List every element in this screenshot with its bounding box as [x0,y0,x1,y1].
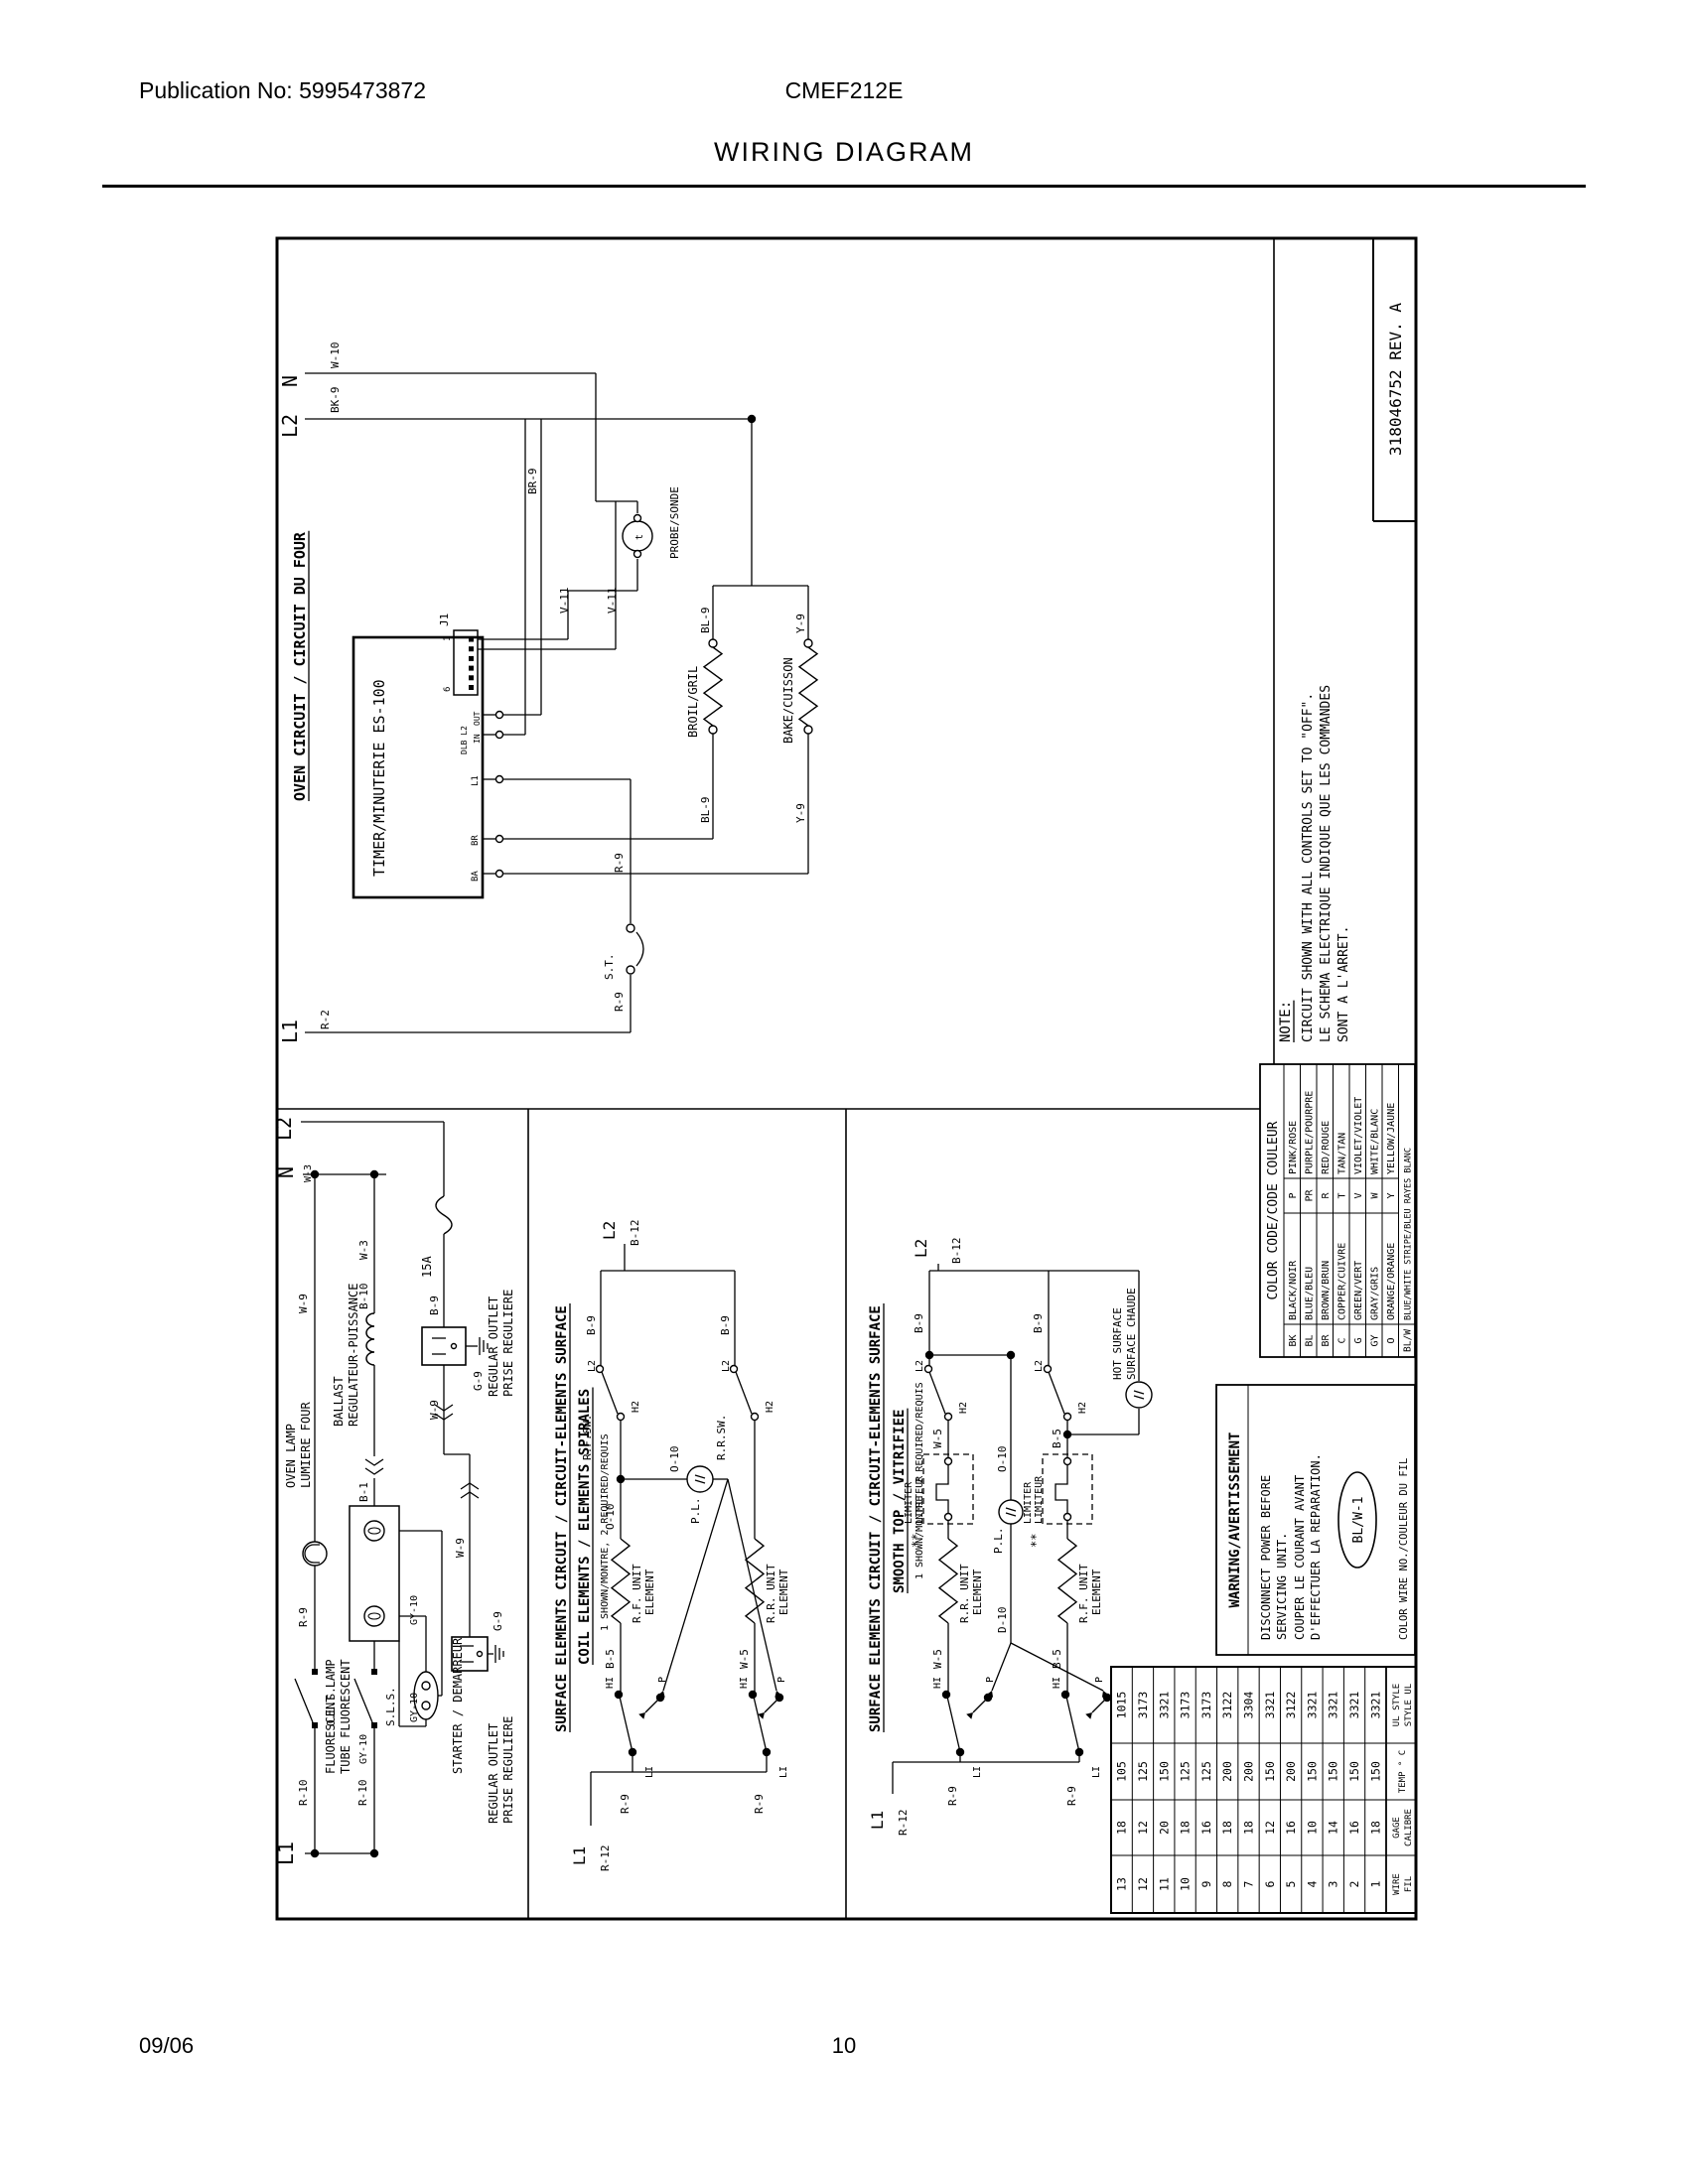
label-3: R-9 [613,992,626,1012]
model-number: CMEF212E [0,77,1688,104]
wire [354,1679,372,1722]
wire-table-cell: 14 [1327,1821,1340,1835]
wire-table-header: WIRE [1392,1873,1402,1895]
revision-box: 318046752 REV. A [1386,303,1405,456]
terminal [1064,1414,1071,1421]
wire-table-cell: 3321 [1263,1692,1277,1719]
wire-table-header: UL STYLE [1392,1684,1402,1726]
label-14: DLB L2 [460,726,469,754]
wire-table-cell: 18 [1368,1821,1382,1835]
wire-table-cell: 3173 [1199,1692,1213,1719]
pilot-light [999,1500,1023,1524]
label-94: H2 [631,1401,641,1413]
warning-footer: COLOR WIRE NO./COULEUR DU FIL [1398,1458,1410,1640]
label-86: ELEMENT [643,1569,656,1615]
label-103: L1 [868,1811,887,1830]
label-20: BR-9 [526,469,539,495]
warning-line: SERVICING UNIT. [1275,1533,1289,1640]
contact-terminal [469,646,474,651]
label-95: L2 [587,1360,598,1372]
wire-no-example: BL/W-1 [1351,1497,1366,1544]
label-30: Y-9 [794,803,807,823]
label-7: BK-9 [329,387,342,414]
wire [1049,1372,1064,1414]
manual-page: Publication No: 5995473872 CMEF212E WIRI… [0,0,1688,2184]
wire-table-cell: 125 [1199,1761,1213,1782]
label-136: O-10 [996,1446,1009,1473]
label-119: R.F. UNIT [1077,1564,1090,1623]
label-113: HI [1052,1677,1062,1689]
label-123: LIMITEUR [914,1475,925,1524]
terminal [422,1702,430,1709]
label-12: 6 [443,687,453,692]
terminal [478,1652,483,1657]
label-55: GY-10 [409,1693,420,1722]
wire-table-cell: 200 [1284,1761,1298,1782]
wire-table-cell: 16 [1347,1821,1361,1835]
terminal [804,639,812,647]
terminal [422,1682,430,1690]
diagram-labels: OVEN CIRCUIT / CIRCUIT DU FOURL1R-2R-9R-… [275,342,1351,1872]
label-135: D-10 [996,1607,1009,1634]
filament [364,1606,384,1626]
ballast-coil [366,1313,374,1365]
label-9: W-10 [329,342,342,369]
label-70: 1 SHOWN/MONTRE, 2 REQUIRED/REQUIS [600,1433,611,1631]
wire-table-cell: 3173 [1136,1692,1150,1719]
color-name: GRAY/GRIS [1369,1267,1380,1320]
hot-surface-indicator [1126,1382,1152,1408]
wire-table-cell: 105 [1115,1761,1129,1782]
label-79: P [657,1677,668,1683]
color-abbr: GY [1369,1334,1380,1346]
label-96: H2 [765,1401,775,1413]
wire-table-cell: 18 [1242,1821,1256,1835]
symbol [936,1464,948,1513]
wire-table-cell: 6 [1263,1880,1277,1887]
label-107: R-9 [946,1786,959,1806]
revision-number: 318046752 REV. A [1386,303,1405,456]
label-33: LE SCHEMA ELECTRIQUE INDIQUE QUE LES COM… [1319,685,1334,1042]
label-53: B-10 [357,1284,370,1310]
wire-table-cell: 18 [1220,1821,1234,1835]
warning-title: WARNING/AVERTISSEMENT [1227,1432,1243,1607]
label-139: SURFACE CHAUDE [1125,1288,1138,1380]
label-83: B-5 [604,1649,617,1669]
wire-table-cell: 18 [1115,1821,1129,1835]
wire-table-cell: 2 [1347,1881,1361,1888]
rf-coil-element [612,1539,630,1623]
label-29: Y-9 [794,614,807,633]
color-abbr: T [1336,1192,1347,1198]
wire-table-cell: 8 [1220,1880,1234,1887]
j1-connector [454,630,478,695]
label-104: R-12 [897,1810,910,1837]
label-71: L1 [570,1846,589,1865]
wire [295,1679,313,1722]
wire-table-header: CALIBRE [1404,1809,1414,1846]
label-78: HI [605,1677,616,1689]
label-133: B-9 [913,1313,925,1333]
label-138: HOT SURFACE [1111,1307,1124,1380]
label-80: LI [778,1766,789,1778]
terminal [1045,1366,1052,1373]
contact-terminal [469,675,474,680]
label-21: V-11 [558,588,571,614]
terminal [627,966,634,974]
label-10: TIMER/MINUTERIE ES-100 [370,679,388,877]
label-57: STARTER / DEMARREUR [451,1637,465,1774]
fuse-15a [436,1196,452,1234]
label-117: R.R. UNIT [958,1564,971,1623]
label-134: B-9 [1032,1313,1045,1333]
wire [929,1372,945,1414]
junction-dot [750,1692,757,1699]
wire-table-cell: 3321 [1368,1692,1382,1719]
terminal [925,1366,932,1373]
pilot-light [687,1466,713,1492]
color-name: RED/ROUGE [1321,1121,1332,1174]
wire-table-cell: 200 [1220,1761,1234,1782]
contact-terminal [469,637,474,642]
terminal [496,871,503,878]
label-81: HI [739,1677,750,1689]
wire-table-cell: 3304 [1242,1692,1256,1719]
terminal [496,732,503,739]
color-abbr: W [1369,1192,1380,1199]
label-2: R-2 [319,1010,332,1029]
color-abbr: C [1336,1337,1347,1343]
color-name: PURPLE/POURPRE [1304,1091,1315,1174]
label-46: S.L.S. [384,1687,397,1726]
label-64: W-9 [454,1538,467,1558]
wire-table-cell: 7 [1242,1880,1256,1887]
terminal [634,515,641,522]
wire-table-cell: 12 [1136,1821,1150,1835]
label-131: H2 [1077,1402,1088,1414]
label-121: ** [910,1534,923,1548]
label-39: OVEN LAMP [284,1424,298,1488]
label-61: PRISE REGULIERE [501,1290,515,1397]
label-11: J1 [438,614,451,626]
label-126: LIMITEUR [1034,1475,1045,1524]
warning-line: DISCONNECT POWER BEFORE [1259,1475,1273,1640]
label-6: L2 [278,414,302,438]
wire [1092,1698,1107,1712]
wire-table-cell: 150 [1347,1761,1361,1782]
label-84: W-5 [738,1649,751,1669]
terminal [618,1414,625,1421]
terminal [1064,1514,1071,1521]
wire [1066,1697,1079,1752]
label-22: V-11 [606,588,619,614]
wire-table-cell: 3321 [1327,1692,1340,1719]
wire [602,1372,618,1414]
label-110: HI [932,1677,943,1689]
page-title: WIRING DIAGRAM [0,137,1688,168]
wire-table-cell: 16 [1199,1821,1213,1835]
bake-element [799,647,817,726]
color-name: TAN/TAN [1336,1133,1347,1174]
rr-coil-element [746,1539,764,1623]
color-abbr: Y [1386,1192,1397,1198]
label-47: GY-10 [358,1734,369,1764]
wire-table-cell: 9 [1199,1880,1213,1887]
outlet [422,1327,466,1365]
label-51: BALLAST [332,1376,346,1427]
contact-terminal [371,1669,377,1675]
wire [620,1697,633,1752]
junction-dot [1062,1692,1069,1699]
wire-table-header: FIL [1404,1876,1414,1892]
color-name: BLUE/WHITE STRIPE/BLEU RAYES BLANC [1403,1148,1413,1320]
label-77: LI [644,1766,655,1778]
label-132: L2 [1034,1360,1045,1372]
terminal [804,726,812,734]
label-45: R-10 [356,1780,369,1807]
filament [364,1521,384,1541]
color-abbr: BL/W [1402,1329,1413,1352]
arrowhead [966,1712,973,1719]
color-abbr: R [1321,1192,1332,1199]
warning-line: COUPER LE COURANT AVANT [1293,1475,1307,1640]
wire-table-cell: 3122 [1284,1692,1298,1719]
warning-box: WARNING/AVERTISSEMENTDISCONNECT POWER BE… [1216,1385,1415,1655]
label-106: B-12 [950,1238,963,1265]
label-128: B-5 [1051,1429,1063,1448]
label-32: CIRCUIT SHOWN WITH ALL CONTROLS SET TO "… [1301,693,1316,1042]
color-name: BROWN/BRUN [1321,1261,1332,1320]
terminal [496,712,503,719]
label-72: R-12 [599,1845,612,1872]
wire [754,1697,767,1752]
terminal [452,1344,457,1349]
symbol [636,932,643,966]
label-41: W-9 [297,1294,310,1313]
junction-dot [616,1692,623,1699]
label-97: L2 [721,1360,732,1372]
label-15: IN [473,734,482,744]
wire-table-header: GAGE [1392,1817,1402,1839]
terminal [1064,1458,1071,1465]
wire-table-cell: 150 [1368,1761,1382,1782]
wire-gauge-table: 1318105101512121253173112015033211018125… [1111,1667,1416,1913]
wire-table-cell: 10 [1305,1821,1319,1835]
wire [973,1698,988,1712]
wire [736,1372,752,1414]
contact-terminal [371,1722,377,1728]
wire-table-cell: 150 [1157,1761,1171,1782]
label-115: W-5 [931,1649,944,1669]
color-abbr: PR [1304,1189,1315,1202]
label-34: SONT A L'ARRET. [1336,926,1351,1042]
color-table-title: COLOR CODE/CODE COULEUR [1266,1121,1281,1299]
color-code-table: COLOR CODE/CODE COULEURBKBLACK/NOIRPPINK… [1260,1064,1415,1357]
label-73: L2 [600,1221,619,1240]
label-36: R-10 [297,1780,310,1807]
label-13: 1 [443,636,453,641]
arrowhead [1085,1712,1092,1719]
contact-terminal [312,1722,318,1728]
label-8: N [278,375,302,387]
wire-table-cell: 125 [1179,1761,1193,1782]
label-5: S.T. [603,954,616,981]
label-38: R-9 [297,1607,310,1627]
wire-table-cell: 1 [1368,1880,1382,1887]
label-74: B-12 [629,1220,641,1247]
contact-terminal [312,1669,318,1675]
wiring-diagram: OVEN CIRCUIT / CIRCUIT DU FOURL1R-2R-9R-… [275,236,1418,1921]
label-91: P.L. [689,1498,702,1525]
label-49: TUBE FLUORESCENT [339,1659,352,1774]
label-25: BROIL/GRIL [686,666,700,738]
label-89: O-10 [604,1504,617,1531]
wire [645,1698,660,1712]
label-92: R.F.SW. [581,1415,594,1460]
terminal [752,1414,759,1421]
wire-table-cell: 13 [1115,1877,1129,1891]
terminal [709,726,717,734]
label-17: L1 [471,775,481,786]
label-26: BL-9 [699,608,712,634]
label-112: LI [1091,1766,1102,1778]
label-114: P [1094,1677,1105,1683]
label-1: L1 [278,1020,302,1043]
wire-table-cell: 3173 [1179,1692,1193,1719]
label-62: G-9 [472,1371,485,1391]
arrowhead [638,1712,645,1719]
color-name: BLACK/NOIR [1288,1260,1299,1320]
wire [947,1697,960,1752]
label-98: B-9 [585,1315,598,1335]
label-122: LIMITER [904,1481,914,1524]
color-name: YELLOW/JAUNE [1386,1103,1397,1174]
label-60: REGULAR OUTLET [487,1297,500,1397]
label-67: PRISE REGULIERE [501,1716,515,1824]
color-abbr: G [1353,1337,1364,1343]
wire-table-cell: 1015 [1115,1692,1129,1719]
wire-table-cell: 12 [1263,1821,1277,1835]
label-19: BA [471,871,481,882]
label-124: ** [1029,1534,1043,1548]
symbol [1055,1464,1067,1513]
label-31: NOTE: [1278,1001,1294,1042]
color-name: PINK/ROSE [1288,1121,1299,1174]
symbol [365,1468,383,1474]
label-18: BR [471,835,481,846]
label-42: L2 [275,1117,296,1141]
label-99: B-9 [719,1315,732,1335]
wire-table-cell: 200 [1242,1761,1256,1782]
wire-table-cell: 3122 [1220,1692,1234,1719]
label-129: H2 [958,1402,969,1414]
label-88: ELEMENT [777,1569,790,1615]
color-name: VIOLET/VIOLET [1353,1097,1364,1174]
broil-element [704,647,722,726]
color-abbr: V [1353,1192,1364,1198]
label-58: 15A [420,1256,434,1278]
header-rule [102,185,1586,188]
wire-table-cell: 10 [1179,1877,1193,1891]
wire-table-cell: 3321 [1305,1692,1319,1719]
label-23: PROBE/SONDE [668,486,681,559]
label-63: W-9 [428,1400,441,1420]
label-66: REGULAR OUTLET [487,1723,500,1824]
label-85: R.F. UNIT [631,1564,643,1623]
wire-table-cell: 20 [1157,1821,1171,1835]
label-90: O-10 [668,1446,681,1473]
junction-dot [943,1692,950,1699]
label-43: N [275,1166,298,1178]
junction-dot [926,1352,933,1359]
wire-table-cell: 3321 [1347,1692,1361,1719]
terminal [709,639,717,647]
color-abbr: BR [1321,1334,1332,1347]
label-137: P.L. [992,1528,1005,1555]
label-28: BAKE/CUISSON [781,657,795,744]
symbol [365,1459,383,1465]
label-120: ELEMENT [1090,1569,1103,1615]
wire-table-cell: 3321 [1157,1692,1171,1719]
color-name: COPPER/CUIVRE [1336,1243,1347,1320]
label-100: SURFACE ELEMENTS CIRCUIT / CIRCUIT-ELEME… [868,1305,884,1732]
terminal [496,836,503,843]
color-name: ORANGE/ORANGE [1386,1243,1397,1320]
label-35: L1 [275,1842,298,1865]
label-82: P [776,1677,787,1683]
wire-table-cell: 11 [1157,1877,1171,1891]
label-75: R-9 [619,1794,632,1814]
label-16: OUT [473,711,482,726]
wire-table-cell: 150 [1305,1761,1319,1782]
wire-table-cell: 12 [1136,1877,1150,1891]
contact-terminal [469,666,474,671]
label-0: OVEN CIRCUIT / CIRCUIT DU FOUR [291,531,309,801]
color-abbr: O [1386,1337,1397,1343]
label-56: GY-10 [409,1595,420,1625]
wire-table-cell: 125 [1136,1761,1150,1782]
label-68: SURFACE ELEMENTS CIRCUIT / CIRCUIT-ELEME… [554,1305,570,1732]
label-59: B-9 [428,1296,441,1315]
label-130: L2 [914,1360,925,1372]
wire-table-header: STYLE UL [1404,1684,1414,1726]
warning-line: D'EFFECTUER LA REPARATION. [1309,1453,1323,1640]
label-4: R-9 [613,853,626,873]
terminal [634,551,641,558]
label-50: B-1 [357,1482,370,1502]
wire-table-cell: 16 [1284,1821,1298,1835]
wire-table-cell: 18 [1179,1821,1193,1835]
label-87: R.R. UNIT [765,1564,777,1623]
label-54: W-3 [357,1240,370,1260]
label-109: LI [972,1766,983,1778]
color-name: GREEN/VERT [1353,1261,1364,1320]
label-116: B-5 [1051,1649,1063,1669]
label-48: FLUORESCENT LAMP [324,1659,338,1774]
wire-table-cell: 3 [1327,1880,1340,1887]
contact-terminal [469,656,474,661]
label-27: BL-9 [699,797,712,824]
rr-smooth-element [939,1539,957,1623]
color-name: WHITE/BLANC [1369,1109,1380,1174]
label-76: R-9 [753,1794,766,1814]
terminal [945,1458,952,1465]
wire-table-cell: 5 [1284,1881,1298,1888]
rf-smooth-element [1058,1539,1076,1623]
wire-table-cell: 4 [1305,1880,1319,1887]
label-108: R-9 [1065,1786,1078,1806]
label-118: ELEMENT [971,1569,984,1615]
